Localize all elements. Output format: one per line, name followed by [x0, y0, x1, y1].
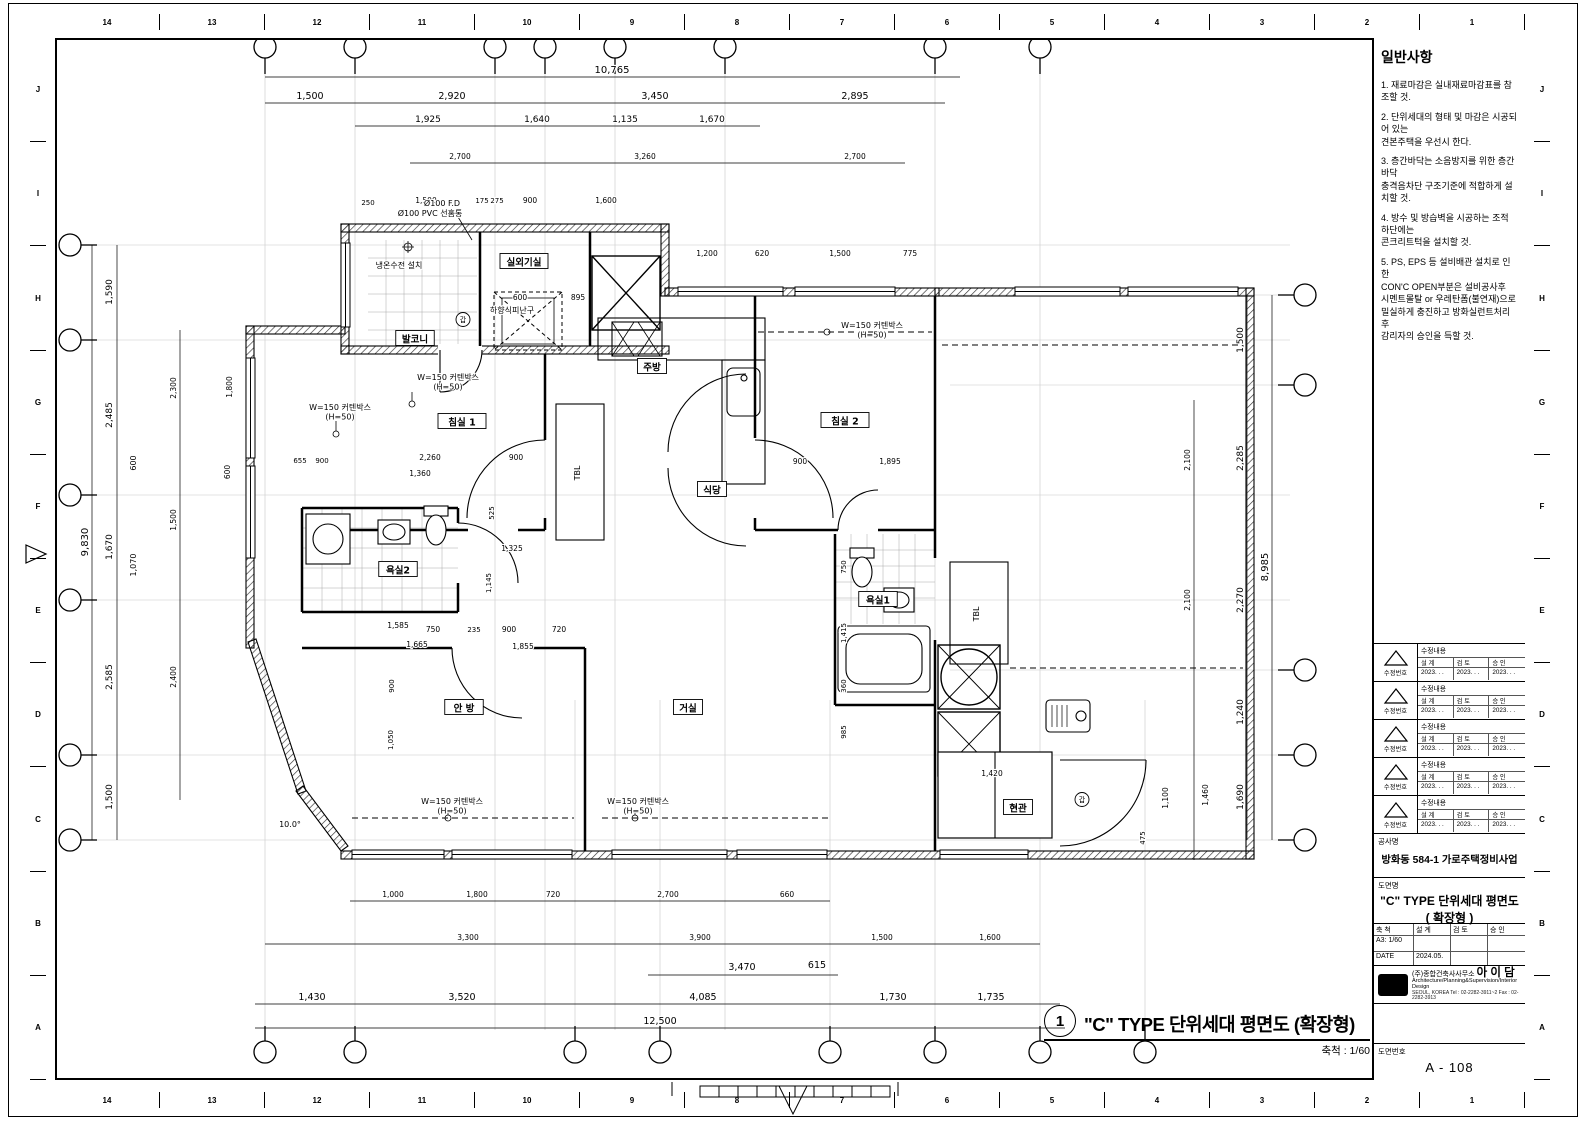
ruler-number: 5	[1000, 14, 1105, 30]
revision-triangle-icon	[1383, 687, 1409, 705]
door-tag: 갑	[460, 316, 467, 324]
dimension-label: 720	[546, 890, 561, 899]
ruler-letter: J	[30, 38, 46, 142]
dimension-label: 600	[223, 465, 232, 480]
dimension-label: 2,700	[657, 890, 679, 899]
dimension-label: 3,260	[634, 152, 656, 161]
dimension-label: 1,730	[879, 992, 906, 1003]
project-name-block: 공사명 방화동 584-1 가로주택정비사업	[1374, 834, 1525, 878]
note-item: 5. PS, EPS 등 설비배관 설치로 인한 CON'C OPEN부분은 설…	[1381, 256, 1518, 343]
dimension-label: 525	[488, 506, 496, 519]
dimension-label: 1,735	[977, 992, 1004, 1003]
grid-ruler-top: 1413121110987654321	[55, 14, 1525, 30]
ruler-letter: C	[1534, 767, 1550, 871]
room-label: 실외기실	[507, 257, 542, 269]
dimension-label: 1,800	[225, 376, 234, 398]
revision-number-cell: 수정번호	[1374, 720, 1418, 757]
dimension-label: 1,325	[501, 544, 523, 553]
dimension-label: 1,925	[415, 115, 441, 125]
note-item: 4. 방수 및 방습벽을 시공하는 조적 하단에는 콘크리트턱을 설치할 것.	[1381, 212, 1518, 249]
annotation: 냉온수전 설치	[376, 260, 423, 270]
revision-block: 수정번호 수정내용 설 계검 토승 인 2023. . .2023. . .20…	[1374, 644, 1525, 682]
ruler-letter: H	[30, 246, 46, 350]
dimension-label: 275	[490, 197, 503, 205]
dimension-label: 1,070	[129, 554, 138, 577]
dimension-label: 1,500	[105, 784, 115, 810]
note-item: 1. 재료마감은 실내재료마감표를 참조할 것.	[1381, 79, 1518, 104]
room-label: 발코니	[402, 334, 428, 346]
ruler-number: 3	[1210, 14, 1315, 30]
scale-sign-table: 축 척 설 계 검 토 승 인 A3: 1/60 DATE 2024.05.	[1374, 924, 1525, 966]
dimension-label: 660	[780, 890, 795, 899]
ruler-number: 7	[790, 14, 895, 30]
revision-content-label: 수정내용	[1418, 644, 1525, 658]
dimension-label: 3,520	[448, 992, 475, 1003]
plan-title: 1 "C" TYPE 단위세대 평면도 (확장형) 축척 : 1/60	[1044, 1005, 1370, 1058]
dimension-label: 1,855	[512, 642, 534, 651]
dimension-label: 2,285	[1236, 445, 1246, 471]
company-logo	[1378, 974, 1408, 996]
ruler-number: 12	[265, 1092, 370, 1108]
dimension-label: 10.0°	[279, 820, 301, 829]
dimension-label: 2,400	[169, 666, 178, 688]
ruler-number: 10	[475, 14, 580, 30]
dimension-label: 900	[502, 625, 517, 634]
ruler-number: 13	[160, 1092, 265, 1108]
dimension-label: 1,590	[105, 279, 115, 305]
door-tag: 갑	[1079, 796, 1086, 804]
dimension-label: 360	[840, 679, 848, 692]
dimension-label: 1,500	[871, 933, 893, 942]
dimension-label: 600	[129, 455, 138, 470]
note-item: 3. 층간바닥는 소음방지를 위한 층간바닥 충격음차단 구조기준에 적합하게 …	[1381, 155, 1518, 205]
annotation: W=150 커텐박스(H=50)	[841, 320, 903, 340]
shafts	[494, 256, 1000, 776]
drawing-number: A - 108	[1378, 1060, 1521, 1075]
ruler-number: 3	[1210, 1092, 1315, 1108]
ruler-number: 14	[55, 14, 160, 30]
dimension-label: 895	[571, 293, 586, 302]
dimension-label: 2,700	[844, 152, 866, 161]
ruler-number: 2	[1315, 14, 1420, 30]
dimension-label: 3,450	[641, 91, 668, 102]
dimension-label: 2,485	[105, 402, 115, 428]
dimension-label: 3,300	[457, 933, 479, 942]
ruler-letter: I	[30, 142, 46, 246]
ruler-number: 13	[160, 14, 265, 30]
ruler-letter: F	[1534, 455, 1550, 559]
ruler-number: 2	[1315, 1092, 1420, 1108]
drawing-name: "C" TYPE 단위세대 평면도	[1378, 892, 1521, 909]
tile-grids	[302, 240, 1038, 836]
ruler-number: 6	[895, 14, 1000, 30]
room-label: 현관	[1009, 803, 1027, 815]
room-label: 주방	[643, 362, 661, 374]
dimension-label: 1,050	[387, 730, 395, 750]
ruler-number: 1	[1420, 1092, 1525, 1108]
dimension-label: 900	[509, 453, 524, 462]
revision-triangle-icon	[1383, 725, 1409, 743]
room-label: 욕실1	[866, 595, 890, 607]
dimension-label: 1,670	[699, 115, 725, 125]
drawing-name-block: 도면명 "C" TYPE 단위세대 평면도 ( 확장형 )	[1374, 878, 1525, 924]
general-notes: 일반사항 1. 재료마감은 실내재료마감표를 참조할 것.2. 단위세대의 형태…	[1374, 38, 1525, 644]
room-label: 욕실2	[386, 565, 410, 577]
annotation: W=150 커텐박스(H=50)	[309, 402, 371, 422]
dimension-label: 1,460	[1201, 784, 1210, 806]
bathroom-fixtures	[306, 506, 1052, 838]
dimension-label: 615	[808, 960, 826, 971]
project-name: 방화동 584-1 가로주택정비사업	[1378, 851, 1521, 866]
note-item: 2. 단위세대의 형태 및 마감은 시공되어 있는 견본주택을 우선시 한다.	[1381, 111, 1518, 148]
dimension-label: 1,500	[296, 91, 323, 102]
dimension-label: 1,100	[1161, 787, 1170, 809]
room-label: 침실 2	[831, 416, 858, 428]
dimension-label: 900	[315, 457, 328, 465]
dimension-label: 475	[1139, 831, 1147, 844]
revision-block: 수정번호 수정내용 설 계검 토승 인 2023. . .2023. . .20…	[1374, 720, 1525, 758]
dimension-label: 2,300	[169, 377, 178, 399]
notes-title: 일반사항	[1381, 47, 1518, 67]
ruler-number: 4	[1105, 14, 1210, 30]
date-value: 2024.05.	[1414, 952, 1451, 965]
dimension-label: 620	[755, 249, 770, 258]
dimension-label: 1,500	[1236, 327, 1246, 353]
revision-triangle-icon	[1383, 801, 1409, 819]
dimension-label: 1,800	[466, 890, 488, 899]
dimension-label: 1,135	[612, 115, 638, 125]
dimension-labels: 10,7651,5002,9203,4502,8951,9251,6401,13…	[80, 65, 1271, 1027]
plan-scale: 축척 : 1/60	[1044, 1043, 1370, 1058]
dimension-label: 2,920	[438, 91, 465, 102]
revision-content-label: 수정내용	[1418, 720, 1525, 734]
dimension-label: 2,895	[841, 91, 868, 102]
dimension-label: 2,100	[1183, 589, 1192, 611]
dimension-label: 775	[903, 249, 918, 258]
revision-number-cell: 수정번호	[1374, 644, 1418, 681]
annotation: Ø100 F.D	[424, 198, 460, 208]
ruler-number: 10	[475, 1092, 580, 1108]
revision-number-cell: 수정번호	[1374, 682, 1418, 719]
dimension-label: 1,670	[105, 534, 115, 560]
ruler-letter: I	[1534, 142, 1550, 246]
dimension-label: 1,240	[1236, 699, 1246, 725]
dimension-label: 12,500	[643, 1016, 676, 1027]
dimension-label: 1,585	[387, 621, 409, 630]
scale-value: A3: 1/60	[1374, 936, 1414, 952]
dimension-label: 1,360	[409, 469, 431, 478]
ruler-letter: G	[1534, 351, 1550, 455]
ruler-number: 11	[370, 14, 475, 30]
ruler-letter: E	[1534, 559, 1550, 663]
ruler-number: 5	[1000, 1092, 1105, 1108]
windows	[246, 243, 1238, 859]
drawing-sheet: { "sheet": { "top_ruler": ["14","13","12…	[0, 0, 1588, 1122]
dimension-label: 1,640	[524, 115, 550, 125]
dimension-label: 655	[293, 457, 306, 465]
dimension-label: 900	[523, 196, 538, 205]
dimension-label: 985	[840, 725, 848, 738]
dimension-label: 720	[552, 625, 567, 634]
annotation: Ø100 PVC 선홈통	[398, 208, 463, 218]
dimension-label: 2,100	[1183, 449, 1192, 471]
annotation: W=150 커텐박스(H=50)	[607, 796, 669, 816]
plan-title-text: "C" TYPE 단위세대 평면도 (확장형)	[1084, 1011, 1355, 1037]
annotation: W=150 커텐박스(H=50)	[417, 372, 479, 392]
revision-number-cell: 수정번호	[1374, 796, 1418, 833]
dimension-label: 1,000	[382, 890, 404, 899]
dimension-label: 600	[513, 293, 528, 302]
revision-block: 수정번호 수정내용 설 계검 토승 인 2023. . .2023. . .20…	[1374, 758, 1525, 796]
annotation: TBL	[972, 606, 981, 622]
dimension-label: 1,420	[981, 769, 1003, 778]
room-label: 식당	[703, 485, 721, 497]
ruler-letter: G	[30, 351, 46, 455]
annotation: TBL	[573, 465, 582, 481]
dimension-label: 2,585	[105, 664, 115, 690]
dimension-label: 250	[361, 199, 374, 207]
company-block: (주)종합건축사사무소 아 이 담 Architecture/Planning&…	[1374, 966, 1525, 1004]
ruler-letter: D	[1534, 663, 1550, 767]
dimension-label: 1,430	[298, 992, 325, 1003]
ruler-number: 9	[580, 14, 685, 30]
dimension-label: 2,700	[449, 152, 471, 161]
ruler-number: 1	[1420, 14, 1525, 30]
ruler-number: 11	[370, 1092, 475, 1108]
dimension-label: 1,895	[879, 457, 901, 466]
room-label: 침실 1	[448, 417, 475, 429]
grid-ruler-right: JIHGFEDCBA	[1534, 38, 1550, 1080]
ruler-number: 14	[55, 1092, 160, 1108]
dimension-label: 3,470	[728, 962, 755, 973]
ruler-letter: B	[1534, 872, 1550, 976]
dimension-label: 1,500	[829, 249, 851, 258]
room-label: 거실	[679, 703, 697, 715]
dimension-label: 3,900	[689, 933, 711, 942]
ruler-number: 8	[685, 14, 790, 30]
ruler-letter: E	[30, 559, 46, 663]
ruler-letter: B	[30, 872, 46, 976]
dimension-label: 1,415	[840, 623, 848, 643]
construction-grid	[85, 60, 1290, 1030]
dimension-label: 9,830	[80, 528, 91, 557]
empty-block	[1374, 1004, 1525, 1044]
annotation: 하향식피난구	[490, 305, 534, 315]
detail-number-bubble: 1	[1044, 1005, 1076, 1037]
ruler-letter: H	[1534, 246, 1550, 350]
dimension-label: 10,765	[595, 65, 630, 76]
revision-content-label: 수정내용	[1418, 796, 1525, 810]
ruler-number: 4	[1105, 1092, 1210, 1108]
dimension-lines	[92, 77, 1272, 1028]
revision-triangle-icon	[1383, 649, 1409, 667]
ruler-letter: C	[30, 767, 46, 871]
dimension-label: 1,690	[1236, 784, 1246, 810]
revision-content-label: 수정내용	[1418, 758, 1525, 772]
dimension-label: 235	[467, 626, 480, 634]
dimension-label: 2,260	[419, 453, 441, 462]
dimension-label: 750	[840, 560, 848, 573]
dimension-label: 1,200	[696, 249, 718, 258]
dimension-label: 175	[475, 197, 488, 205]
dimension-label: 900	[388, 679, 396, 692]
ruler-letter: A	[1534, 976, 1550, 1080]
dimension-label: 1,665	[406, 640, 428, 649]
room-label: 안 방	[454, 703, 475, 715]
revision-block: 수정번호 수정내용 설 계검 토승 인 2023. . .2023. . .20…	[1374, 796, 1525, 834]
dimension-label: 2,270	[1236, 587, 1246, 613]
dimension-label: 4,085	[689, 992, 716, 1003]
north-marker	[18, 540, 58, 570]
scale-bar	[640, 1080, 960, 1122]
dimension-label: 1,600	[979, 933, 1001, 942]
floor-plan: 10,7651,5002,9203,4502,8951,9251,6401,13…	[55, 38, 1372, 1080]
drawing-number-block: 도면번호 A - 108	[1374, 1044, 1525, 1080]
annotation: W=150 커텐박스(H=50)	[421, 796, 483, 816]
ruler-letter: D	[30, 663, 46, 767]
revision-block: 수정번호 수정내용 설 계검 토승 인 2023. . .2023. . .20…	[1374, 682, 1525, 720]
dimension-label: 8,985	[1260, 553, 1271, 582]
revision-number-cell: 수정번호	[1374, 758, 1418, 795]
ruler-letter: J	[1534, 38, 1550, 142]
dimension-label: 1,500	[169, 509, 178, 531]
title-block-panel: 일반사항 1. 재료마감은 실내재료마감표를 참조할 것.2. 단위세대의 형태…	[1372, 38, 1525, 1080]
dimension-label: 1,145	[485, 573, 493, 593]
revision-content-label: 수정내용	[1418, 682, 1525, 696]
ruler-number: 12	[265, 14, 370, 30]
dimension-label: 750	[426, 625, 441, 634]
dimension-label: 1,600	[595, 196, 617, 205]
dimension-label: 900	[793, 457, 808, 466]
ruler-letter: A	[30, 976, 46, 1080]
revision-triangle-icon	[1383, 763, 1409, 781]
